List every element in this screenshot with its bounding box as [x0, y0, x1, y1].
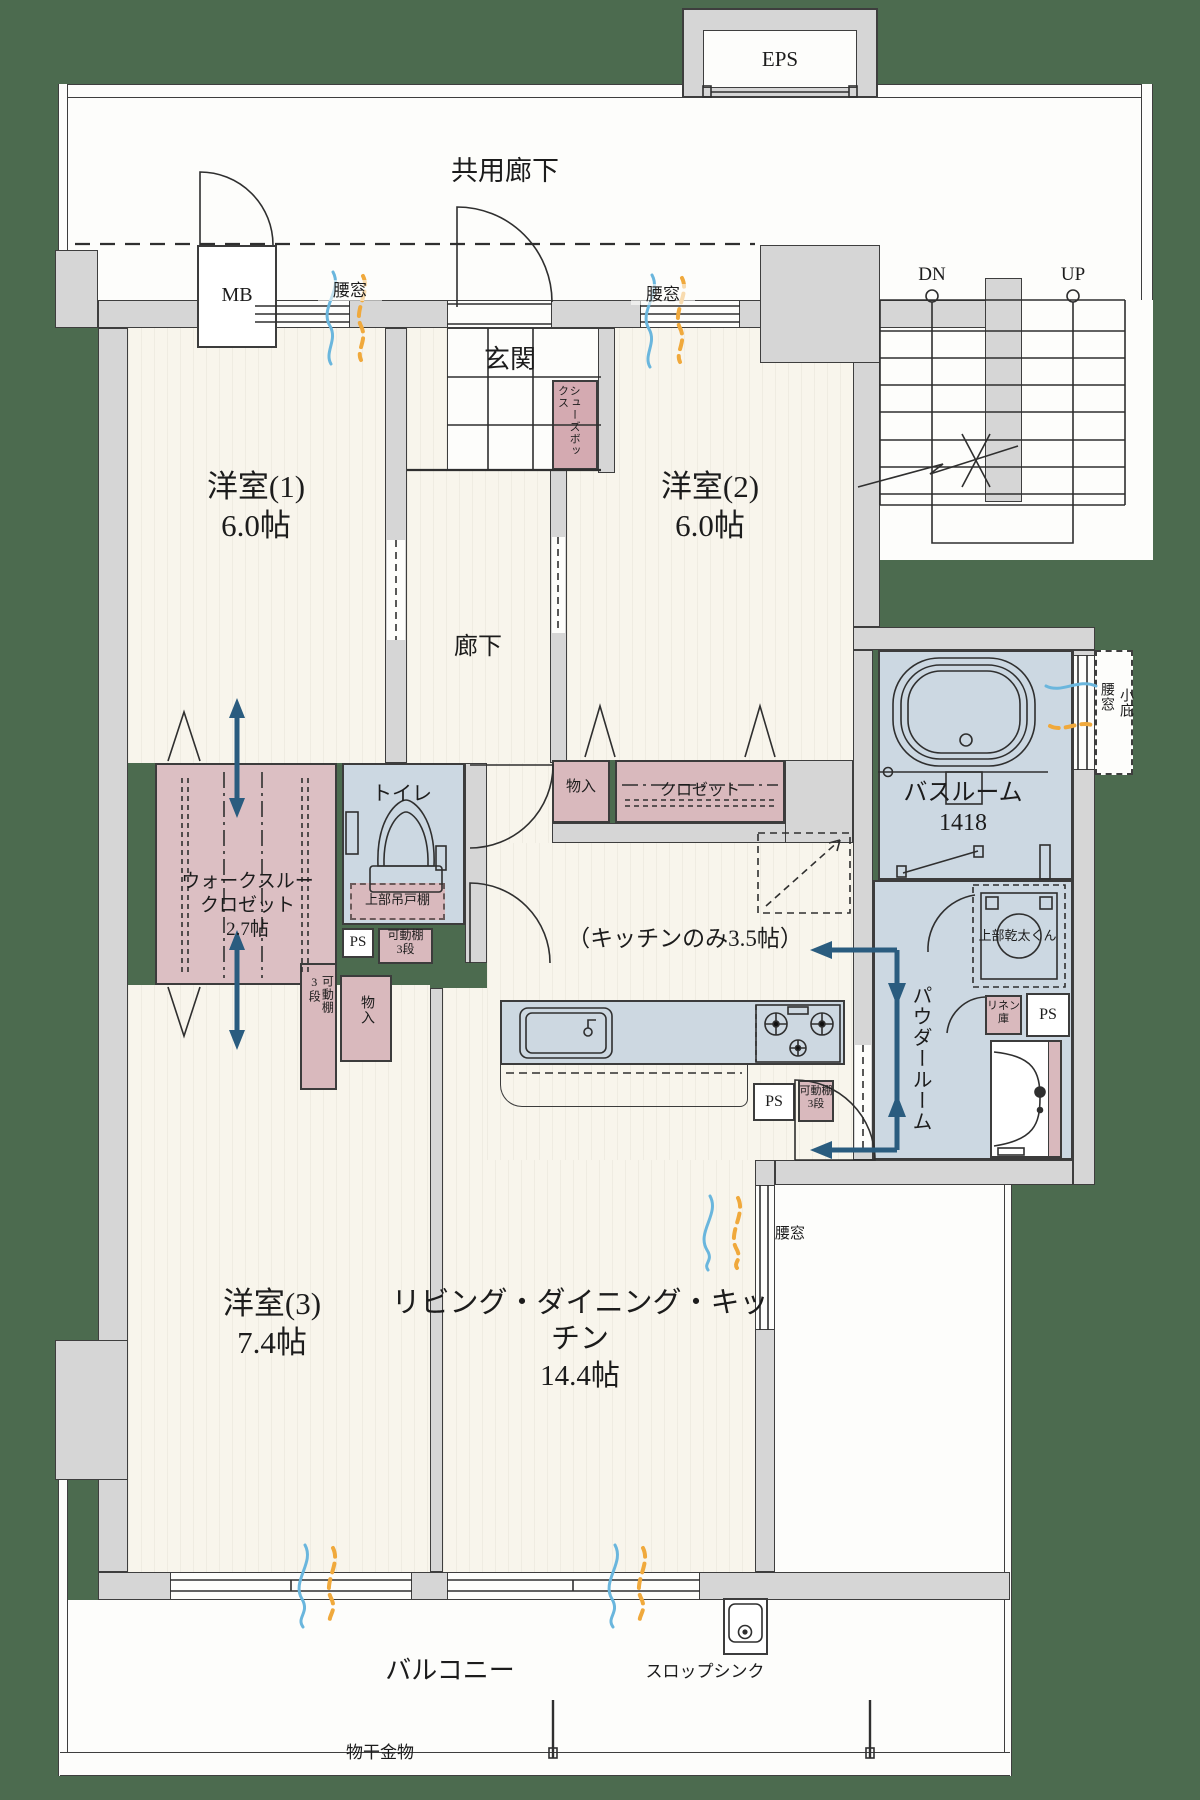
right-edge-lower — [1004, 1185, 1012, 1776]
room3-floor — [128, 985, 430, 1572]
wall-toilet-right — [465, 763, 487, 963]
plan-left-boundary — [58, 84, 68, 250]
ps-box-powder — [1026, 993, 1070, 1037]
shelf-box-kitchen — [798, 1080, 834, 1122]
kitchen-counter — [500, 1000, 845, 1065]
slop-sink-box — [723, 1598, 768, 1655]
door-gap-powder — [855, 1045, 871, 1150]
wall-closet-right-mass — [785, 760, 853, 843]
toilet-upper-cabinet-box — [350, 883, 445, 920]
room1-floor — [128, 328, 385, 763]
balcony-outer-edge — [60, 1752, 1010, 1776]
door-gap-room2 — [552, 537, 565, 633]
bathroom-room — [878, 650, 1073, 880]
storage-box-lower — [340, 975, 392, 1062]
linen-box — [985, 995, 1022, 1035]
eps-inner — [703, 30, 857, 88]
corridor-top-edge — [60, 84, 1147, 98]
small-eaves-box — [1095, 650, 1133, 775]
ps-box-kitchen — [753, 1083, 795, 1121]
kitchen-counter-front — [500, 1065, 748, 1107]
stair-landing-strip — [985, 278, 1022, 502]
walk-through-closet-box — [155, 763, 337, 985]
wall-room3-ldk — [430, 988, 443, 1572]
door-gap-room1 — [387, 540, 405, 640]
balcony-area — [60, 1600, 1010, 1766]
window-bottom-ldk — [447, 1572, 700, 1600]
wall-stair-left — [760, 245, 880, 363]
balcony-left-edge — [58, 1480, 68, 1776]
closet-room2 — [615, 760, 785, 823]
floor-plan: EPS 共用廊下 MB 腰窓 腰窓 DN UP 玄関 シューズボックス 洋室(1… — [0, 0, 1200, 1800]
ps-box-toilet — [342, 928, 374, 958]
wall-entrance-right — [598, 328, 615, 473]
wall-powder-bottom — [775, 1160, 1073, 1185]
vanity-side-panel — [1048, 1042, 1060, 1156]
shoe-box — [552, 380, 598, 470]
window-bath-right — [1073, 655, 1095, 770]
storage-box-upper — [552, 760, 610, 823]
window-top-room2 — [640, 300, 740, 328]
wall-bath-top — [853, 627, 1095, 650]
window-bottom-room3 — [170, 1572, 412, 1600]
wall-bump-left-top — [55, 250, 98, 328]
ldk-floor-mid — [443, 988, 487, 1160]
window-ldk-right — [755, 1185, 775, 1330]
shelf-box-b — [300, 963, 337, 1090]
shelf-box-a — [378, 928, 433, 964]
service-area-se — [775, 1160, 1010, 1600]
mb-box — [197, 245, 277, 348]
entrance-door-opening — [447, 300, 552, 328]
ldk-floor-lower — [443, 1160, 775, 1572]
wall-bump-left-bottom — [55, 1340, 128, 1480]
